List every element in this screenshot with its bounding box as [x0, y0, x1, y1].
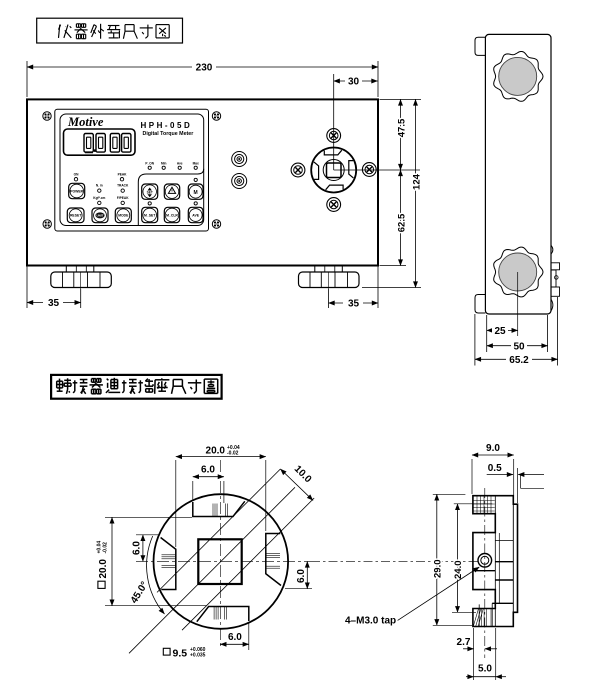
svg-text:MODE: MODE [118, 214, 129, 218]
svg-text:+0.035: +0.035 [190, 653, 206, 659]
svg-text:-0.02: -0.02 [227, 451, 239, 457]
svg-text:30: 30 [348, 77, 360, 88]
svg-text:Kgf*.cm: Kgf*.cm [93, 196, 105, 200]
svg-text:AVE: AVE [192, 213, 199, 217]
svg-text:Ave: Ave [177, 162, 183, 166]
svg-text:HPH-05D: HPH-05D [141, 121, 193, 130]
svg-text:ON: ON [74, 172, 79, 176]
svg-text:SET: SET [147, 190, 153, 194]
svg-text:9.5: 9.5 [173, 648, 188, 660]
svg-text:P_ON: P_ON [145, 162, 154, 166]
svg-text:-0.02: -0.02 [103, 542, 109, 554]
svg-text:6.0: 6.0 [201, 465, 215, 476]
svg-text:35: 35 [348, 299, 360, 310]
svg-text:POWER: POWER [70, 189, 83, 193]
svg-text:230: 230 [196, 63, 213, 74]
svg-text:6.0: 6.0 [228, 632, 242, 643]
svg-text:Motive: Motive [67, 115, 104, 129]
svg-text:Digital Torque Meter: Digital Torque Meter [143, 131, 194, 137]
svg-text:20.0: 20.0 [206, 445, 226, 456]
svg-text:4–M3.0 tap: 4–M3.0 tap [345, 616, 396, 627]
svg-text:F/PEAK: F/PEAK [117, 196, 129, 200]
svg-text:35: 35 [48, 298, 60, 309]
svg-text:6.0: 6.0 [132, 541, 143, 555]
svg-text:29.0: 29.0 [432, 560, 443, 579]
svg-text:Max: Max [193, 162, 199, 166]
svg-text:PEAK: PEAK [118, 172, 128, 176]
svg-text:TRACK: TRACK [117, 183, 129, 187]
svg-text:M: M [194, 190, 198, 196]
svg-text:N. m: N. m [96, 183, 103, 187]
svg-text:124: 124 [412, 173, 423, 190]
svg-text:UNIT: UNIT [97, 214, 104, 218]
svg-text:9.0: 9.0 [486, 443, 500, 454]
svg-text:65.2: 65.2 [509, 355, 529, 366]
svg-text:M_CLR: M_CLR [166, 213, 178, 217]
svg-text:62.5: 62.5 [397, 213, 408, 232]
svg-text:25: 25 [494, 326, 506, 337]
svg-text:2.7: 2.7 [457, 637, 471, 648]
svg-text:50: 50 [513, 341, 525, 352]
svg-text:20.0: 20.0 [98, 559, 109, 579]
svg-text:RESET: RESET [70, 214, 82, 218]
svg-text:47.5: 47.5 [397, 118, 408, 137]
svg-text:Min: Min [161, 162, 167, 166]
svg-text:0.5: 0.5 [488, 463, 502, 474]
svg-text:6.0: 6.0 [296, 569, 307, 583]
svg-text:24.0: 24.0 [453, 561, 464, 580]
svg-text:5.0: 5.0 [478, 664, 492, 675]
svg-text:M_SET: M_SET [144, 213, 156, 217]
